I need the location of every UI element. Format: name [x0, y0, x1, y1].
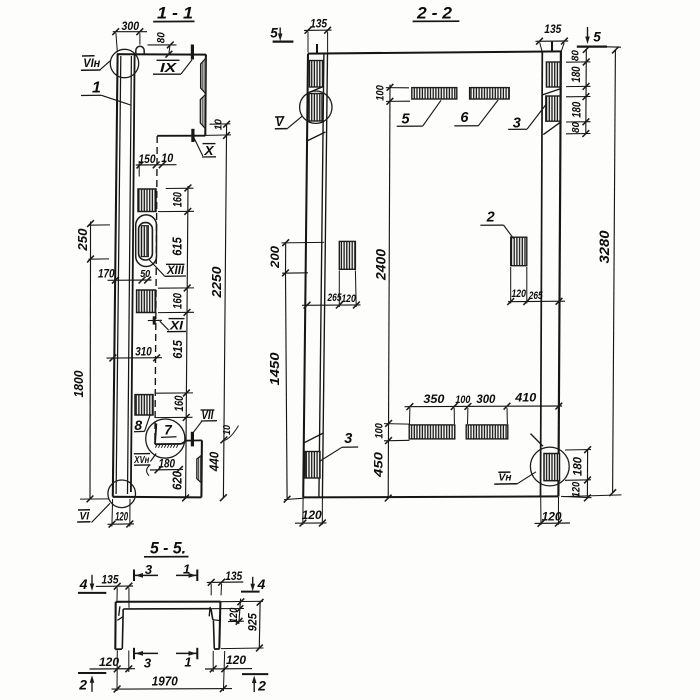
svg-text:5: 5 — [402, 112, 411, 128]
svg-text:135: 135 — [102, 575, 120, 587]
svg-text:620: 620 — [171, 471, 185, 490]
svg-text:2: 2 — [78, 677, 87, 693]
svg-text:X: X — [203, 144, 214, 158]
svg-text:120: 120 — [228, 607, 240, 623]
svg-text:4: 4 — [257, 576, 266, 592]
svg-text:Vн: Vн — [499, 472, 513, 484]
svg-text:120: 120 — [302, 508, 322, 522]
svg-text:410: 410 — [514, 390, 536, 404]
svg-text:VIн: VIн — [83, 56, 101, 70]
svg-text:2: 2 — [486, 210, 495, 226]
svg-text:150: 150 — [139, 154, 157, 166]
svg-text:265: 265 — [528, 290, 543, 302]
svg-text:250: 250 — [76, 229, 90, 252]
svg-text:120: 120 — [571, 481, 583, 497]
svg-text:1970: 1970 — [152, 674, 179, 689]
svg-text:3: 3 — [144, 655, 152, 670]
svg-text:615: 615 — [171, 236, 185, 255]
svg-text:925: 925 — [245, 613, 259, 631]
svg-text:IX: IX — [160, 61, 177, 75]
svg-text:80: 80 — [155, 31, 167, 43]
svg-text:2400: 2400 — [374, 249, 389, 282]
svg-text:V: V — [276, 117, 285, 129]
svg-text:1450: 1450 — [268, 352, 282, 385]
svg-text:120: 120 — [99, 655, 119, 669]
svg-text:3: 3 — [145, 562, 153, 577]
svg-text:100: 100 — [455, 394, 471, 406]
svg-text:180: 180 — [571, 101, 583, 118]
svg-text:450: 450 — [372, 452, 386, 479]
svg-text:10: 10 — [212, 119, 224, 130]
svg-text:120: 120 — [115, 512, 128, 524]
svg-text:265: 265 — [327, 292, 342, 304]
svg-text:5 - 5.: 5 - 5. — [150, 540, 186, 558]
svg-text:3280: 3280 — [597, 230, 612, 264]
svg-text:10: 10 — [161, 153, 174, 165]
svg-text:135: 135 — [544, 24, 562, 36]
svg-text:1800: 1800 — [72, 370, 86, 397]
svg-text:120: 120 — [511, 288, 526, 300]
svg-text:1: 1 — [184, 654, 191, 669]
svg-text:10: 10 — [221, 425, 233, 435]
svg-text:80: 80 — [570, 122, 582, 133]
svg-text:XI: XI — [169, 320, 184, 332]
svg-text:4: 4 — [79, 576, 88, 592]
svg-text:440: 440 — [208, 452, 222, 472]
svg-text:2: 2 — [257, 678, 266, 694]
svg-text:5: 5 — [593, 29, 601, 44]
svg-text:3: 3 — [344, 431, 352, 447]
svg-text:135: 135 — [310, 19, 328, 31]
svg-text:200: 200 — [268, 246, 282, 269]
svg-text:300: 300 — [122, 19, 140, 33]
svg-text:2250: 2250 — [209, 266, 224, 299]
svg-text:615: 615 — [171, 339, 185, 358]
svg-text:180: 180 — [570, 457, 584, 476]
svg-text:XIII: XIII — [166, 265, 185, 277]
svg-text:160: 160 — [171, 192, 185, 207]
svg-text:100: 100 — [374, 422, 386, 438]
svg-text:310: 310 — [135, 347, 152, 359]
svg-text:50: 50 — [140, 268, 150, 280]
svg-text:1 - 1: 1 - 1 — [157, 4, 193, 23]
svg-text:80: 80 — [570, 50, 582, 61]
svg-text:170: 170 — [98, 269, 115, 281]
svg-text:350: 350 — [423, 392, 444, 406]
svg-text:135: 135 — [225, 571, 243, 583]
svg-text:5: 5 — [270, 25, 278, 40]
svg-text:1: 1 — [92, 80, 101, 97]
svg-text:100: 100 — [374, 85, 386, 101]
svg-text:8: 8 — [134, 417, 142, 433]
svg-text:7: 7 — [164, 423, 173, 438]
svg-text:120: 120 — [341, 293, 356, 305]
svg-text:120: 120 — [226, 653, 246, 667]
svg-text:300: 300 — [476, 392, 495, 406]
svg-text:160: 160 — [172, 395, 186, 411]
svg-text:VI: VI — [80, 510, 90, 522]
svg-text:160: 160 — [170, 293, 184, 309]
svg-text:1: 1 — [183, 561, 190, 576]
svg-text:180: 180 — [571, 66, 583, 83]
svg-text:2 - 2: 2 - 2 — [416, 4, 453, 23]
svg-text:6: 6 — [460, 110, 469, 126]
svg-text:180: 180 — [159, 459, 176, 471]
